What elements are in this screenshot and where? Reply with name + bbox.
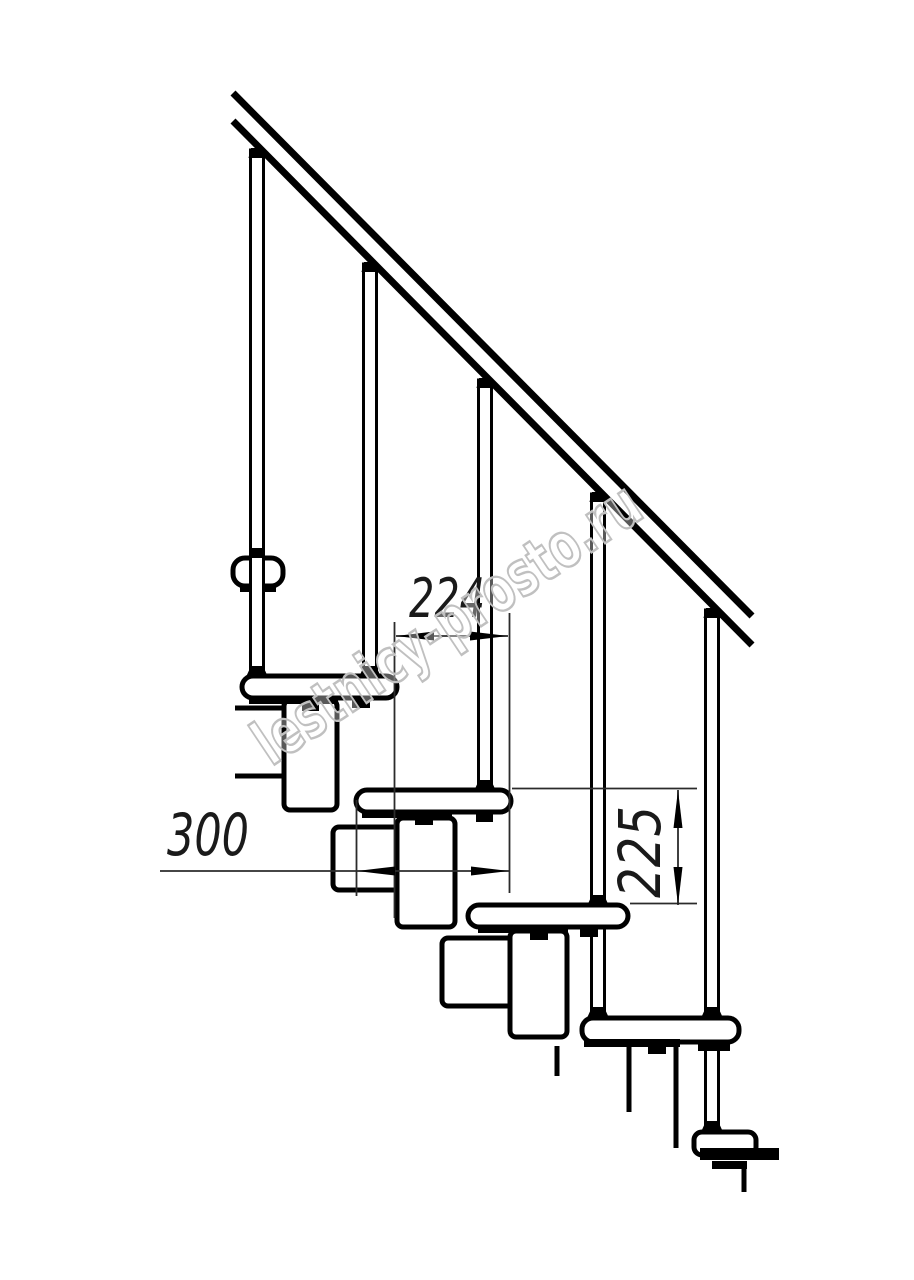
baluster-2 [364,264,377,676]
tread-5-underplate [700,1148,779,1160]
column-2 [397,818,455,927]
tread-3-underplate [478,925,568,933]
dimension-label-300: 300 [167,801,249,869]
tread-3 [468,905,628,927]
dimension-label-225: 225 [606,806,674,898]
arrow-up-225 [674,790,683,828]
dimension-riser-height: 225 [606,790,683,905]
tread-3-foot-a [530,931,548,940]
arrow-down-225 [674,867,683,905]
tread-4 [582,1018,739,1042]
tread-2-foot-b [476,813,493,822]
tread-2-foot-a [415,816,433,825]
column-3 [510,931,567,1037]
baluster-1 [251,150,264,676]
baluster-5 [706,610,719,1132]
staircase-technical-drawing: 224 300 225 lestnicy-prosto.ru [0,0,914,1280]
baluster-1-stub-joint [249,548,266,558]
connector-2 [442,938,518,1006]
staircase-drawing-page: 224 300 225 lestnicy-prosto.ru [0,0,914,1280]
tread-2 [356,790,511,812]
tread-3-foot-b [580,928,598,937]
tread-4-foot-b [698,1042,730,1051]
baluster-4 [592,494,605,1018]
tread-2-underplate [362,810,452,818]
tread-5-step-cut [712,1161,747,1169]
tread-4-foot-a [648,1045,666,1054]
connector-1 [333,827,400,890]
arrow-right-300 [471,867,509,876]
